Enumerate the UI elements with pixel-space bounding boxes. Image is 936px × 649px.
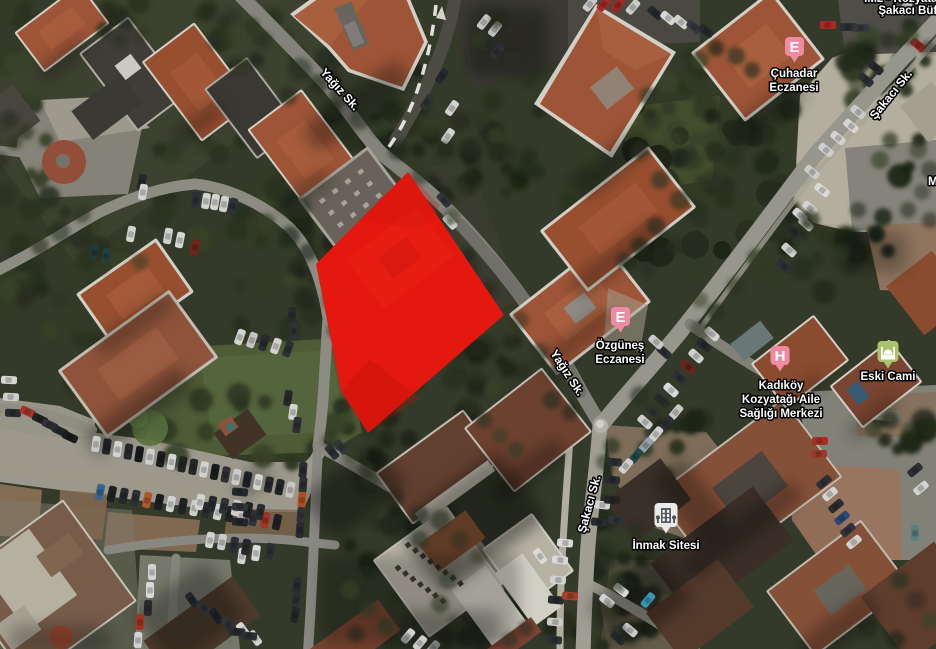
svg-text:Eczanesi: Eczanesi	[595, 354, 644, 366]
svg-text:M: M	[928, 174, 936, 188]
svg-text:Çuhadar: Çuhadar	[771, 68, 818, 80]
svg-text:Eczanesi: Eczanesi	[769, 82, 818, 94]
svg-text:E: E	[789, 39, 799, 56]
svg-text:Şakacı Büfe: Şakacı Büfe	[878, 5, 936, 17]
svg-text:İnmak Sitesi: İnmak Sitesi	[632, 539, 699, 552]
svg-text:Eski Cami: Eski Cami	[861, 371, 916, 383]
svg-text:Kadıköy: Kadıköy	[759, 380, 804, 392]
svg-text:İM2 - Kozyatağı: İM2 - Kozyatağı	[864, 0, 936, 5]
svg-text:H: H	[775, 348, 786, 365]
svg-text:Kozyatağı Aile: Kozyatağı Aile	[742, 394, 820, 406]
svg-text:Özgüneş: Özgüneş	[596, 339, 645, 352]
svg-text:E: E	[615, 309, 625, 326]
svg-text:Sağlığı Merkezi: Sağlığı Merkezi	[739, 408, 822, 420]
